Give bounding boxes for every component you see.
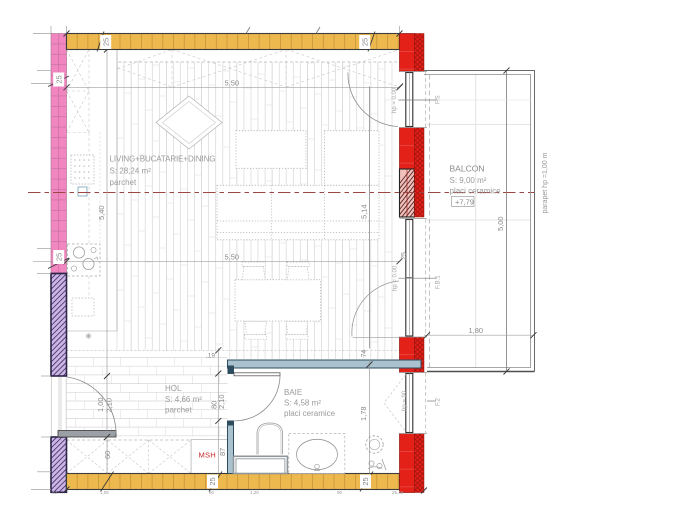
- svg-text:40: 40: [52, 490, 58, 495]
- svg-text:placi ceramice: placi ceramice: [450, 187, 502, 196]
- svg-text:1,78: 1,78: [359, 406, 368, 421]
- svg-text:25,49: 25,49: [392, 490, 404, 495]
- svg-text:HOL: HOL: [165, 384, 182, 393]
- svg-text:25: 25: [101, 38, 110, 46]
- svg-text:F.B.1: F.B.1: [436, 275, 442, 289]
- svg-text:1,05: 1,05: [100, 490, 109, 495]
- svg-text:90: 90: [337, 490, 343, 495]
- svg-text:placi ceramice: placi ceramice: [284, 409, 336, 418]
- svg-text:,19: ,19: [206, 353, 215, 360]
- svg-text:74: 74: [361, 350, 368, 358]
- svg-text:25: 25: [208, 477, 217, 485]
- svg-text:25: 25: [360, 38, 369, 46]
- svg-text:hp = 90: hp = 90: [402, 390, 408, 411]
- svg-text:1,80: 1,80: [469, 326, 484, 335]
- svg-text:60: 60: [103, 451, 112, 459]
- svg-text:MSH: MSH: [199, 451, 216, 460]
- svg-text:25: 25: [361, 477, 370, 485]
- svg-text:25: 25: [54, 75, 63, 83]
- svg-text:S: 4,58 m²: S: 4,58 m²: [284, 399, 321, 408]
- svg-text:+7,79: +7,79: [455, 198, 474, 207]
- svg-text:5,50: 5,50: [225, 79, 240, 88]
- svg-text:90: 90: [209, 490, 215, 495]
- svg-text:5,50: 5,50: [225, 253, 240, 262]
- svg-text:,25: ,25: [401, 252, 408, 262]
- svg-text:5,14: 5,14: [360, 204, 369, 219]
- svg-text:parchet: parchet: [110, 178, 137, 187]
- svg-text:S: 28,24 m²: S: 28,24 m²: [110, 167, 152, 176]
- svg-text:25: 25: [54, 253, 63, 261]
- svg-text:LIVING+BUCATARIE+DINING: LIVING+BUCATARIE+DINING: [110, 155, 216, 164]
- svg-text:5,40: 5,40: [97, 205, 106, 220]
- svg-text:hp = 0.00: hp = 0.00: [392, 87, 398, 113]
- svg-text:2,10: 2,10: [217, 394, 226, 409]
- svg-text:87: 87: [218, 448, 227, 456]
- svg-text:S: 9,00 m²: S: 9,00 m²: [450, 176, 487, 185]
- svg-text:parapet hp =1,00 m: parapet hp =1,00 m: [542, 152, 549, 213]
- svg-text:F.S: F.S: [436, 95, 442, 104]
- svg-text:hp = 0.00: hp = 0.00: [393, 265, 399, 291]
- svg-text:S: 4,66 m²: S: 4,66 m²: [165, 395, 202, 404]
- svg-text:5,00: 5,00: [496, 216, 505, 231]
- svg-text:BALCON: BALCON: [450, 164, 485, 174]
- svg-text:1,20: 1,20: [250, 490, 259, 495]
- svg-text:parchet: parchet: [165, 406, 192, 415]
- svg-text:2,10: 2,10: [105, 398, 114, 413]
- svg-text:F.2: F.2: [436, 397, 442, 406]
- svg-text:BAIE: BAIE: [284, 388, 302, 397]
